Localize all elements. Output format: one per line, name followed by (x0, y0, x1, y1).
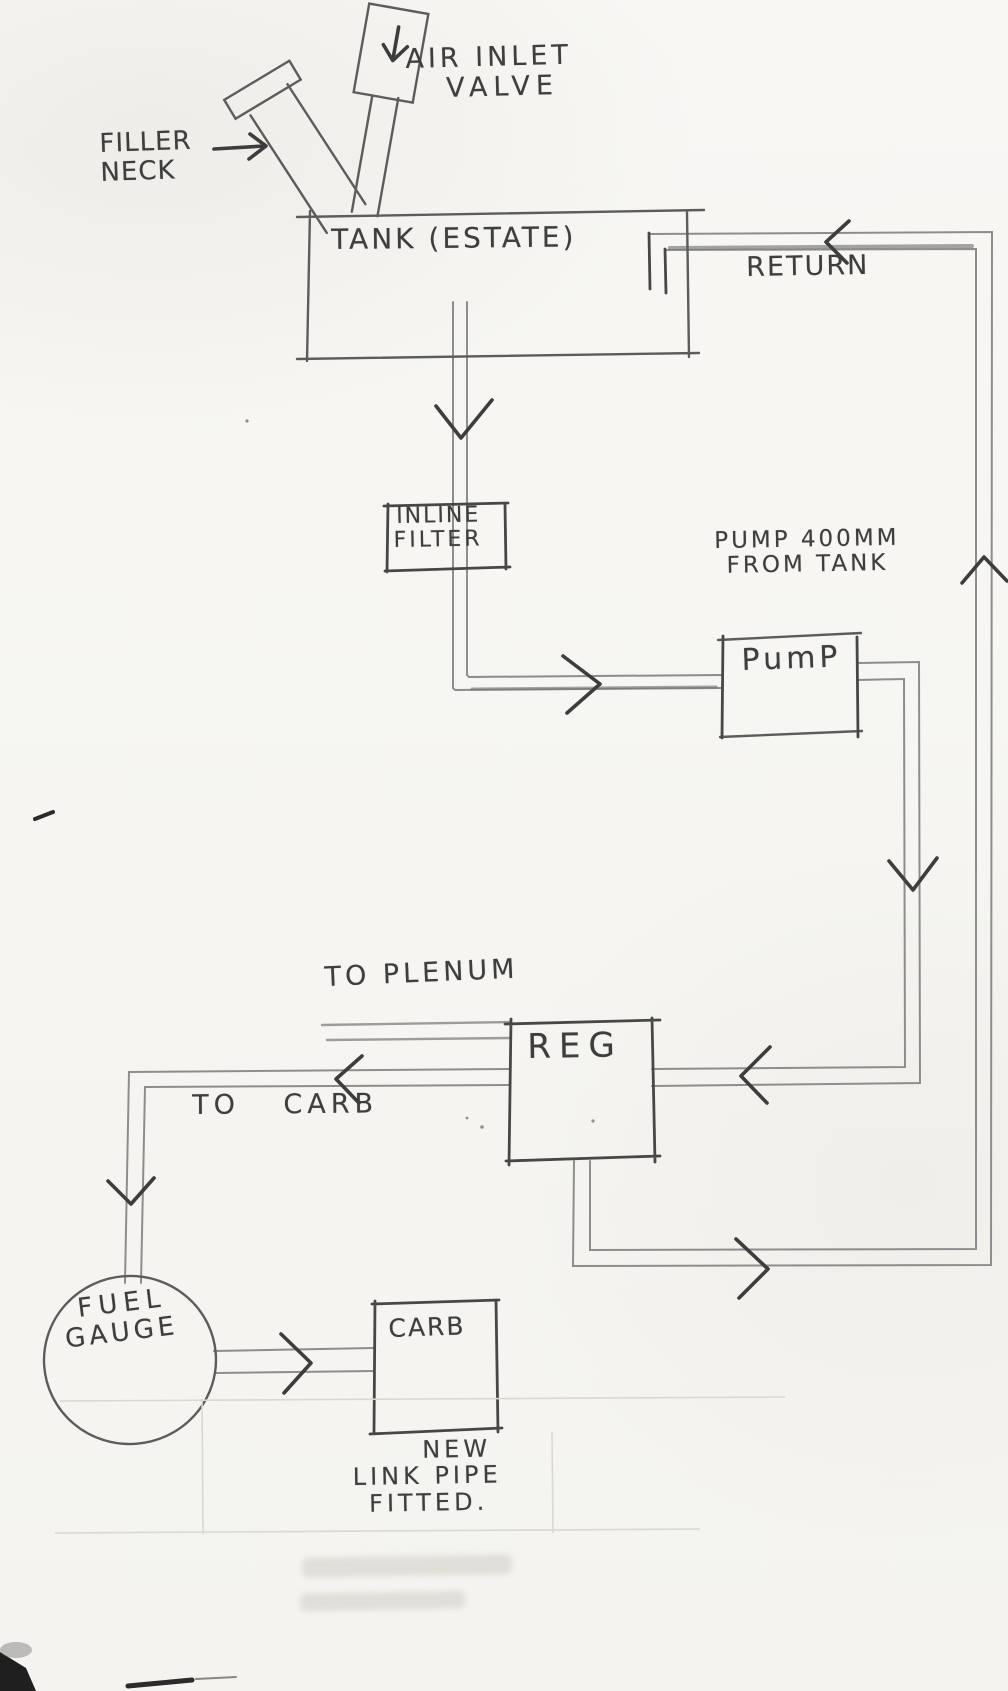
label-line: LINK PIPE (352, 1462, 501, 1491)
air-pipe-side (352, 96, 372, 212)
pipe-line (216, 1371, 374, 1373)
filler-cap (224, 61, 300, 119)
pencil-speck (591, 1119, 594, 1122)
pipe-line (322, 1022, 510, 1025)
pipe-pump-to-reg (652, 662, 920, 1086)
air-inlet-valve (333, 4, 428, 219)
erased-pencil-smudge (302, 1554, 512, 1578)
pipe-line (467, 302, 722, 677)
pipe-smudge-line (670, 246, 972, 248)
label-line: FITTED. (369, 1488, 502, 1517)
inline-filter-label: INLINE FILTER (396, 503, 483, 553)
pipe-return-run (573, 232, 992, 1266)
pencil-dash-mark (35, 812, 53, 819)
label-line: FROM TANK (726, 551, 900, 579)
filler-pipe-side (287, 84, 365, 204)
filler-pipe-side (251, 115, 327, 232)
filler-neck-label: FILLER NECK (99, 127, 193, 187)
flow-arrow-right-icon (563, 656, 600, 713)
faint-line (202, 1399, 203, 1534)
fuel-gauge-label: FUEL GAUGE (76, 1283, 180, 1352)
label-line: FILTER (393, 528, 482, 554)
pipe-line (573, 232, 992, 1266)
pump-label: PumP (741, 641, 842, 677)
air-inlet-valve-label: AIR INLET VALVE (405, 41, 573, 105)
flow-arrow-right-icon (281, 1334, 311, 1393)
pencil-speck (480, 1125, 484, 1129)
label-line: INLINE (396, 503, 482, 529)
pencil-dash-mark (196, 1677, 236, 1679)
filler-pointer-arrow-icon (214, 134, 266, 159)
faint-line (55, 1529, 700, 1533)
return-line-label: RETURN (746, 251, 870, 283)
tank-return-elbow (649, 233, 666, 293)
tank-label: TANK (ESTATE) (331, 222, 577, 255)
flow-arrow-right-icon (736, 1239, 768, 1298)
pipe-line (453, 302, 722, 690)
pipe-line (590, 249, 976, 1250)
erased-pencil-smudge (300, 1591, 465, 1612)
label-line: FILLER (99, 127, 192, 159)
pipe-tank-to-filter-to-pump (453, 302, 722, 690)
pipe-line (327, 1038, 510, 1040)
scanned-sketch-page: AIR INLET VALVE FILLER NECK TANK (ESTATE… (0, 0, 1008, 1691)
pump-distance-note: PUMP 400MM FROM TANK (714, 526, 900, 580)
label-line: VALVE (446, 70, 573, 103)
pencil-speck (245, 419, 248, 422)
pipe-gauge-to-carb (214, 1348, 374, 1373)
regulator-label: REG (527, 1027, 623, 1066)
label-line: NECK (100, 155, 193, 187)
pencil-dash-mark (128, 1680, 192, 1686)
flow-arrow-up-icon (962, 557, 1007, 583)
pipe-reg-to-plenum (322, 1022, 510, 1040)
pipe-line (652, 679, 905, 1069)
faint-line (552, 1432, 553, 1533)
new-link-pipe-note: NEW LINK PIPE FITTED. (352, 1435, 502, 1517)
flow-arrow-left-icon (741, 1047, 770, 1103)
label-line: NEW (422, 1435, 501, 1463)
faint-line (60, 1397, 785, 1401)
flow-arrow-down-icon (108, 1178, 154, 1204)
to-carb-label: TO CARB (192, 1089, 378, 1120)
page-corner-smear (0, 1642, 32, 1658)
carb-outline-bottom (370, 1428, 502, 1434)
pipe-line (652, 662, 920, 1086)
flow-arrow-down-icon (436, 400, 492, 438)
flow-arrow-down-icon (889, 858, 937, 890)
carb-label: CARB (388, 1312, 466, 1342)
scan-artifacts (0, 419, 595, 1691)
pencil-speck (466, 1117, 469, 1120)
air-pipe-side (377, 98, 398, 216)
